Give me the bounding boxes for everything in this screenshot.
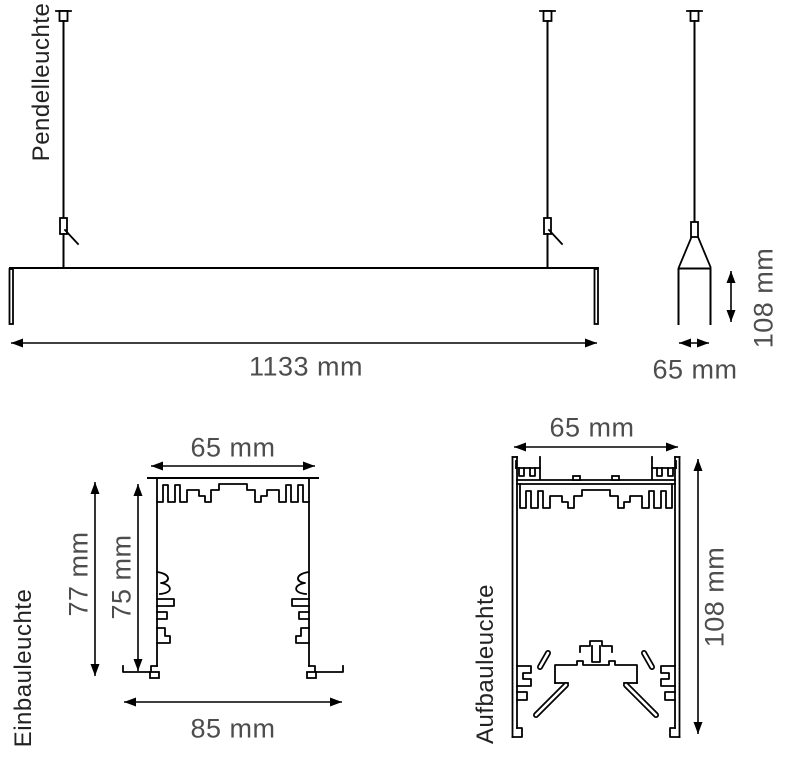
- dim-recessed-bottom-width: 85 mm: [190, 714, 275, 745]
- pendant-cone-fitting: [679, 222, 711, 267]
- pendant-ceiling-mount-left: [56, 11, 71, 21]
- pendant-cable-adjuster-left: [60, 218, 78, 268]
- surface-top-hooks-right: [652, 457, 676, 479]
- surface-top-hooks-left: [516, 457, 540, 479]
- recessed-top-comb: [157, 478, 309, 502]
- pendant-body: [10, 268, 599, 324]
- recessed-section-label: Einbauleuchte: [10, 589, 38, 748]
- pendant-end-view: [679, 11, 732, 343]
- surface-top-comb: [520, 484, 672, 508]
- dim-surface-width: 65 mm: [549, 413, 634, 444]
- pendant-cable-adjuster-right: [544, 218, 562, 268]
- surface-bottom-assembly: [517, 641, 675, 715]
- pendant-body-endcap-right: [595, 269, 599, 324]
- dim-recessed-recess-height: 75 mm: [107, 534, 138, 619]
- recessed-clips-left: [157, 572, 174, 643]
- surface-center-t-bracket: [580, 641, 612, 652]
- pendant-side-view: [10, 11, 599, 343]
- recessed-clips-right: [292, 572, 309, 643]
- pendant-end-profile: [679, 269, 711, 325]
- technical-drawing-page: Pendelleuchte 1133 mm 65 mm 108 mm Einba…: [0, 0, 788, 767]
- dim-pendant-width: 65 mm: [652, 355, 737, 386]
- dim-surface-height: 108 mm: [700, 547, 731, 648]
- dim-pendant-height: 108 mm: [749, 248, 780, 349]
- pendant-ceiling-mount-right: [540, 11, 555, 21]
- dim-recessed-top-width: 65 mm: [190, 433, 275, 464]
- surface-clips-right: [661, 666, 675, 700]
- dim-pendant-length: 1133 mm: [249, 352, 363, 383]
- surface-profile-drawing: [513, 447, 699, 737]
- surface-section-label: Aufbauleuchte: [472, 584, 500, 744]
- recessed-bottom-flanges: [123, 666, 343, 678]
- pendant-ceiling-mount-end: [687, 11, 702, 21]
- surface-clips-left: [517, 666, 531, 700]
- dim-recessed-overall-height: 77 mm: [64, 531, 95, 616]
- pendant-section-label: Pendelleuchte: [28, 3, 56, 162]
- pendant-body-endcap-left: [10, 269, 14, 324]
- surface-lamp-channel: [555, 661, 637, 683]
